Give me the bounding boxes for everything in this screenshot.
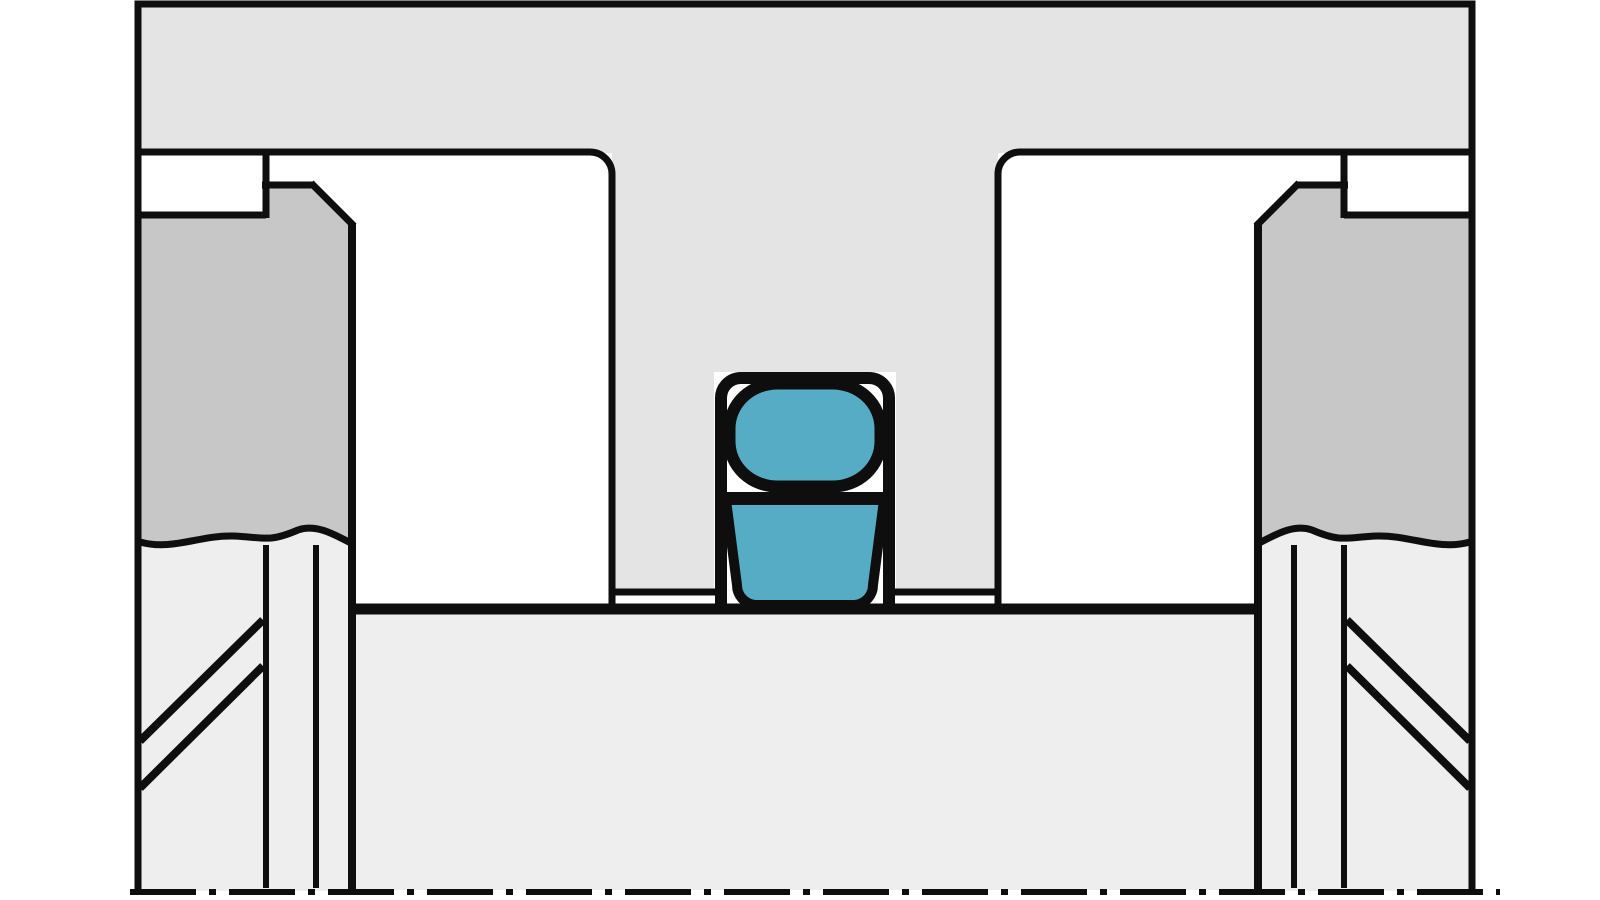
left-gland-fill <box>140 186 352 545</box>
seal-installation-drawing <box>0 0 1600 900</box>
back-up-ring <box>726 500 884 605</box>
housing-fill <box>141 6 1469 153</box>
rod-fill <box>352 609 1258 890</box>
seal-cross-section-svg <box>0 0 1600 900</box>
o-ring <box>730 384 881 487</box>
right-gland-fill <box>1258 186 1470 545</box>
